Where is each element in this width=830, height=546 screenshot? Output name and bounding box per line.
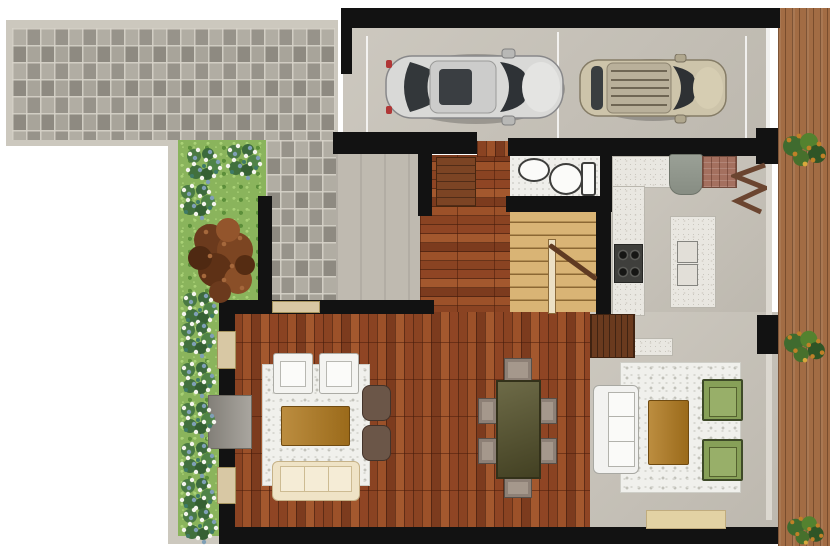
garage-door-threshold — [477, 141, 511, 157]
island-sink-basin — [677, 241, 698, 263]
car-sedan — [382, 48, 568, 128]
island-sink-basin — [677, 264, 698, 286]
firewood-box — [590, 314, 635, 358]
dining-table — [496, 380, 541, 479]
ottoman — [362, 425, 391, 461]
dining-chair — [504, 358, 532, 382]
wall-east-mid — [757, 315, 778, 354]
hall-cabinet — [436, 157, 476, 207]
toilet-bowl — [549, 163, 583, 195]
living-bench — [646, 510, 726, 529]
living-sofa — [593, 385, 639, 474]
armchair-cushion — [709, 387, 737, 417]
deck-planter — [779, 326, 829, 364]
window-north — [272, 301, 320, 313]
refrigerator — [669, 154, 703, 195]
armchair-cushion — [709, 447, 737, 477]
wall-bathroom-bottom — [506, 196, 616, 212]
deck-planter — [779, 126, 829, 170]
sofa-cushions — [280, 466, 352, 492]
window-east-living — [766, 354, 772, 520]
wall-east-top — [756, 128, 778, 164]
wall-garage-top — [341, 8, 780, 28]
flower-bed — [178, 504, 222, 546]
cobblestone-driveway — [12, 28, 335, 140]
car-suv — [577, 54, 729, 124]
green-armchair — [702, 379, 743, 421]
chair-pad — [482, 402, 493, 420]
chair-pad — [542, 402, 553, 420]
parking-line — [745, 36, 747, 138]
toilet-tank — [581, 162, 596, 196]
armchair-cushion — [280, 361, 306, 387]
family-sofa — [272, 461, 360, 501]
deck-edge-line — [766, 28, 770, 142]
flower-bed — [176, 398, 220, 440]
entry-porch-floor — [336, 154, 420, 304]
flower-bed — [176, 358, 220, 400]
floor-plan — [0, 0, 830, 546]
zigzag-shelf — [731, 160, 767, 218]
wall-south — [231, 527, 778, 544]
sofa-cushions — [608, 392, 635, 467]
wall-garage-left — [341, 28, 352, 74]
side-deck — [778, 8, 830, 546]
wall-porch-right — [418, 140, 432, 216]
chair-pad — [482, 442, 493, 460]
living-coffee-table — [648, 400, 689, 465]
chair-pad — [542, 442, 553, 460]
chair-pad — [508, 362, 528, 378]
wall-garage-bottom-right — [508, 138, 766, 156]
chair-pad — [508, 482, 528, 494]
family-coffee-table — [281, 406, 350, 446]
flower-bed — [222, 140, 266, 182]
green-armchair — [702, 439, 743, 481]
flower-bed — [176, 318, 220, 360]
bathroom-sink — [518, 158, 550, 182]
armchair-cushion — [326, 361, 352, 387]
cobblestone-walkway — [266, 140, 336, 312]
dining-chair — [478, 438, 497, 464]
white-armchair — [319, 353, 359, 394]
dining-chair — [478, 398, 497, 424]
wall-garage-bottom-left — [333, 132, 477, 154]
deck-planter — [780, 512, 830, 546]
kitchen-counter-top — [612, 156, 672, 188]
cooktop — [614, 244, 643, 283]
dining-chair — [504, 478, 532, 498]
white-armchair — [273, 353, 313, 394]
parking-line — [366, 36, 368, 138]
wall-stairs-right — [596, 212, 611, 314]
ottoman — [362, 385, 391, 421]
